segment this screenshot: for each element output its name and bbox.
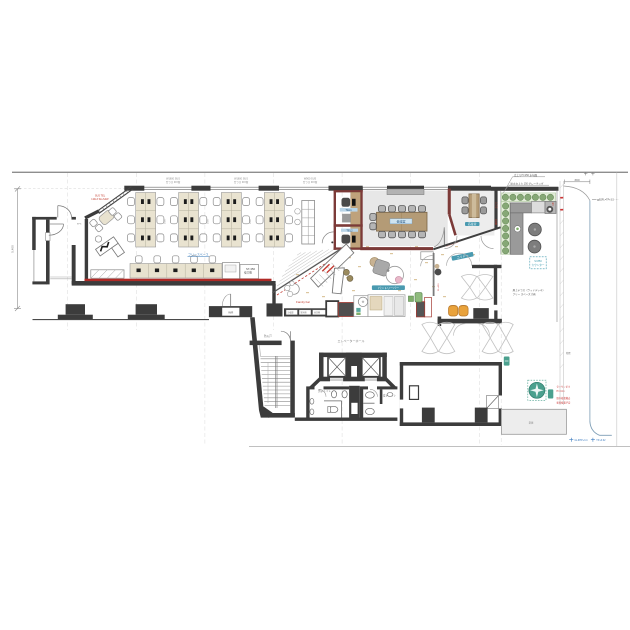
svg-text:TEL2: TEL2 [346, 228, 353, 232]
svg-text:FL+150: FL+150 [438, 283, 440, 291]
svg-text:コリドー: コリドー [456, 253, 469, 259]
svg-text:S=850: S=850 [534, 259, 542, 263]
svg-text:会議室: 会議室 [396, 219, 405, 224]
svg-text:TEL1: TEL1 [345, 208, 352, 212]
svg-text:防水立上り 150 グレーチング: 防水立上り 150 グレーチング [511, 181, 545, 185]
svg-text:カウンター: カウンター [532, 263, 545, 267]
svg-text:応接室: 応接室 [468, 222, 477, 226]
svg-text:防火戸: 防火戸 [264, 334, 272, 338]
svg-text:Family bar: Family bar [296, 300, 310, 304]
svg-text:WR: WR [228, 310, 234, 314]
svg-text:1500: 1500 [250, 218, 252, 224]
svg-text:フリースペース: フリースペース [188, 251, 209, 256]
svg-text:パントリーバー: パントリーバー [378, 285, 399, 290]
svg-text:ガラス FIX窓: ガラス FIX窓 [166, 180, 181, 184]
svg-text:複合機: 複合機 [244, 271, 252, 275]
svg-text:男子トイレ: 男子トイレ [318, 389, 331, 393]
svg-text:1500: 1500 [208, 218, 210, 224]
svg-text:立上りH=150 水勾配: 立上りH=150 水勾配 [514, 173, 538, 177]
svg-text:ガラス FIX窓: ガラス FIX窓 [234, 180, 249, 184]
svg-text:屋上テラス（ウッドデッキ）: 屋上テラス（ウッドデッキ） [513, 288, 545, 292]
svg-text:4500: 4500 [574, 179, 580, 182]
svg-text:物置: 物置 [566, 351, 571, 355]
svg-text:GL≒TP+3.4: GL≒TP+3.4 [575, 439, 589, 442]
svg-text:倉庫: 倉庫 [529, 421, 534, 425]
svg-text:エレベーターホール: エレベーターホール [337, 338, 364, 343]
svg-text:ST-350: ST-350 [246, 267, 255, 271]
svg-text:LWL3 SLLS4W: LWL3 SLLS4W [92, 198, 110, 201]
svg-text:1500: 1500 [165, 218, 167, 224]
svg-text:ガラス FIX窓: ガラス FIX窓 [303, 180, 318, 184]
svg-text:≒B2FL=TP+3.5 - - -: ≒B2FL=TP+3.5 - - - [597, 199, 618, 202]
svg-text:フリー スペース计画: フリー スペース计画 [513, 292, 536, 296]
svg-text:EPS: EPS [77, 224, 82, 226]
svg-text:CB: CB [553, 202, 555, 206]
svg-text:TP+3.62: TP+3.62 [596, 439, 606, 442]
svg-text:5,400: 5,400 [11, 245, 15, 253]
svg-text:W900: W900 [496, 218, 498, 225]
